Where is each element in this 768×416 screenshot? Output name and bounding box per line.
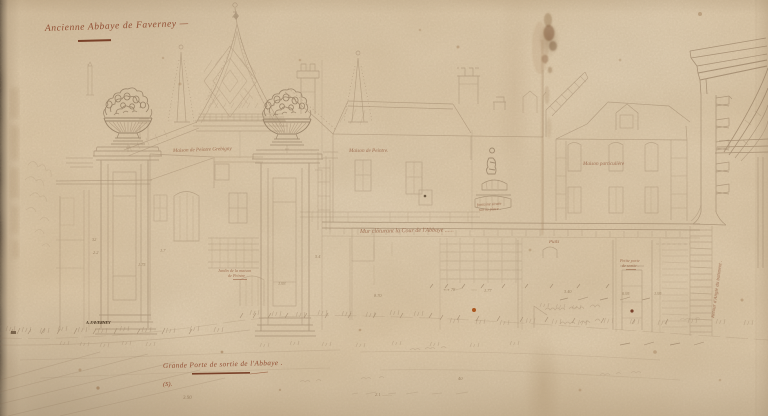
svg-text:+ + 78: + + 78 bbox=[443, 287, 456, 292]
svg-text:3.90: 3.90 bbox=[183, 396, 192, 401]
svg-text:5.4: 5.4 bbox=[315, 254, 321, 259]
svg-text:Puits: Puits bbox=[548, 240, 559, 245]
svg-text:1.77: 1.77 bbox=[484, 288, 492, 293]
svg-text:2.2: 2.2 bbox=[93, 250, 99, 255]
svg-text:de sortie .: de sortie . bbox=[622, 263, 639, 268]
svg-text:40: 40 bbox=[458, 376, 463, 381]
svg-text:Maison de Peintre.: Maison de Peintre. bbox=[348, 148, 388, 154]
svg-text:3.40: 3.40 bbox=[564, 289, 572, 294]
svg-text:Maison particulière: Maison particulière bbox=[582, 161, 625, 167]
svg-text:de Peintre: de Peintre bbox=[228, 273, 245, 278]
svg-text:2.1 .........: 2.1 ......... bbox=[375, 392, 392, 397]
svg-text:1.95: 1.95 bbox=[654, 291, 662, 296]
svg-text:1.75: 1.75 bbox=[138, 262, 146, 267]
svg-text:1.7: 1.7 bbox=[160, 248, 166, 253]
svg-text:0.95: 0.95 bbox=[622, 291, 630, 296]
svg-text:1.93: 1.93 bbox=[278, 281, 286, 286]
svg-text:8.70: 8.70 bbox=[374, 293, 382, 298]
svg-text:A. FAVERNEY: A. FAVERNEY bbox=[85, 320, 111, 325]
svg-text:(S).: (S). bbox=[163, 381, 173, 388]
